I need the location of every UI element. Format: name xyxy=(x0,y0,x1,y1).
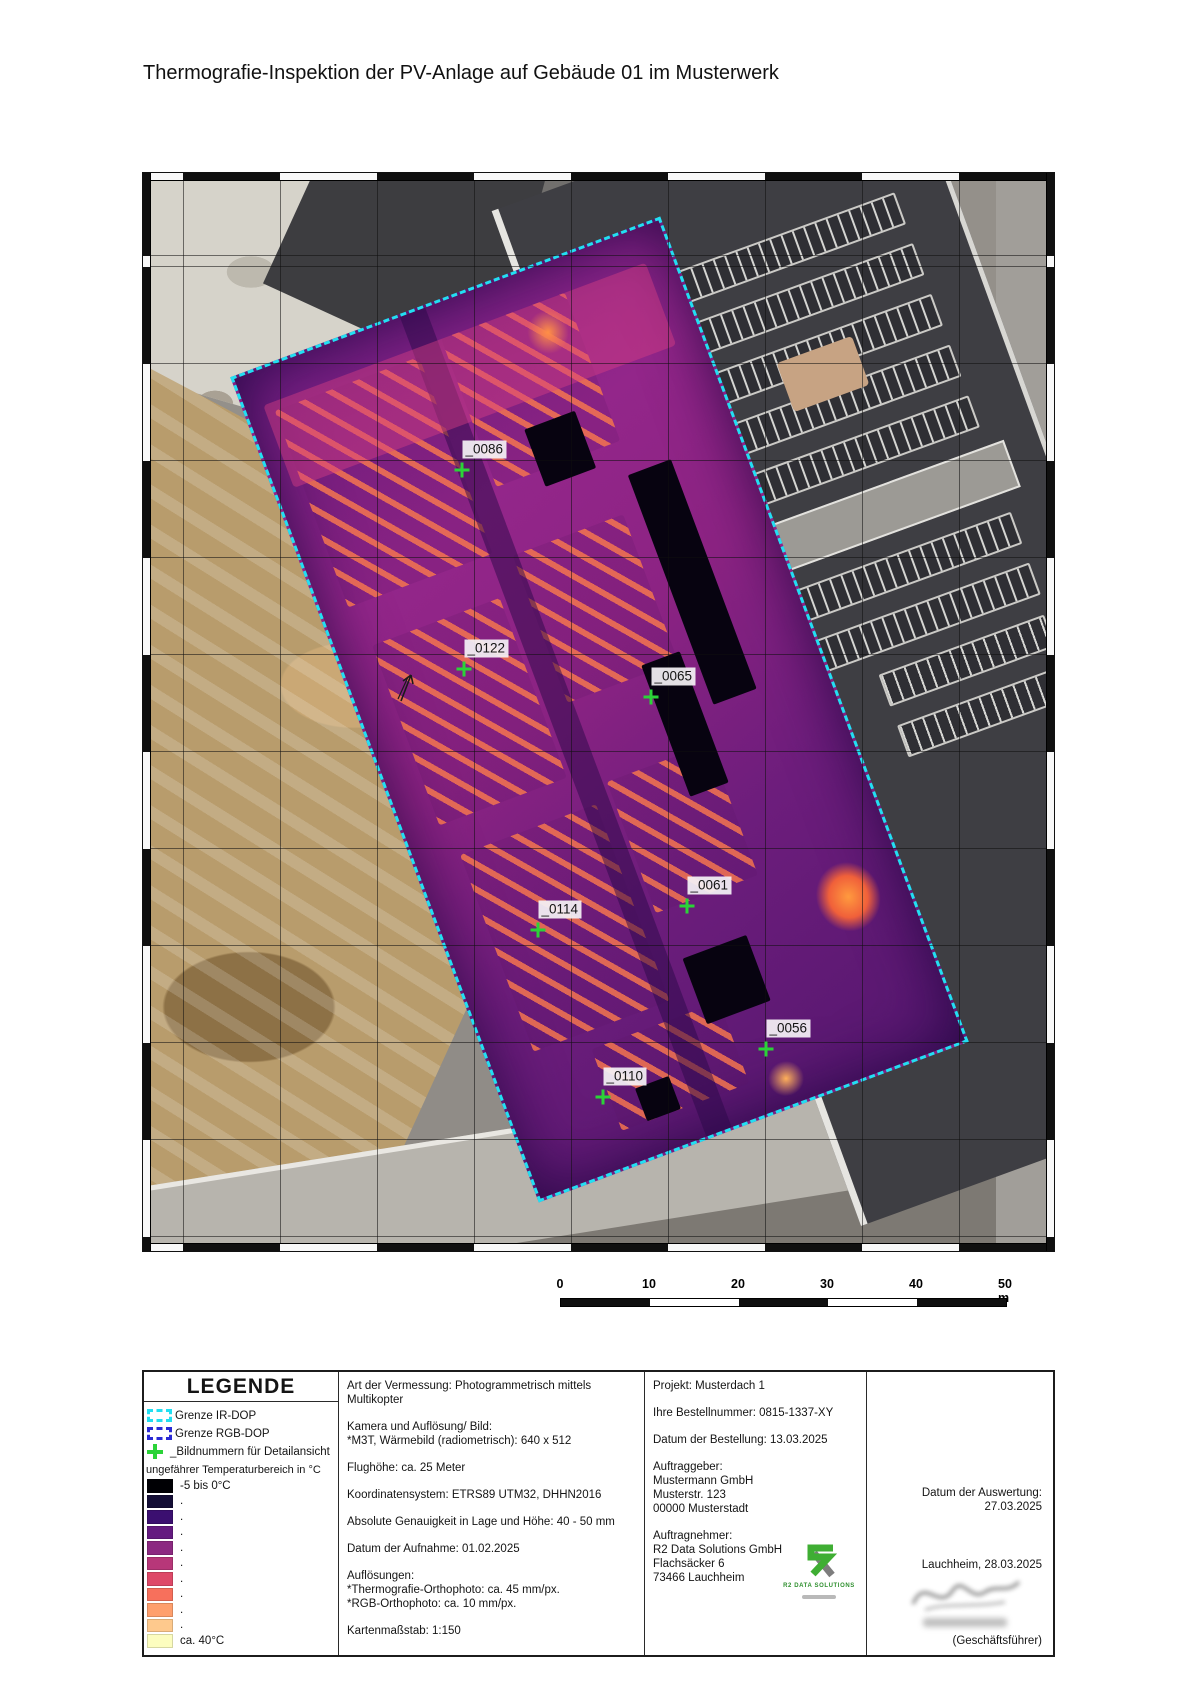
detail-image-marker: _0086 xyxy=(455,463,470,478)
scalebar-segment xyxy=(917,1299,1006,1306)
temperature-swatch-label: . xyxy=(180,1510,183,1524)
scalebar-segment xyxy=(828,1299,917,1306)
detail-image-marker: _0122 xyxy=(457,662,472,677)
temperature-swatch-label: . xyxy=(180,1618,183,1632)
temperature-swatch-row: . xyxy=(147,1602,338,1618)
legend-item-label: Grenze RGB-DOP xyxy=(175,1427,270,1441)
project-info-block: Ihre Bestellnummer: 0815-1337-XY xyxy=(653,1406,860,1420)
project-info-block: Auftraggeber:Mustermann GmbHMusterstr. 1… xyxy=(653,1460,860,1516)
temperature-swatch-label: . xyxy=(180,1587,183,1601)
survey-info-paragraph: Flughöhe: ca. 25 Meter xyxy=(347,1461,638,1475)
detail-image-number: _0065 xyxy=(652,668,696,686)
green-cross-icon xyxy=(455,463,470,478)
survey-info-paragraph: Art der Vermessung: Photogrammetrisch mi… xyxy=(347,1379,638,1407)
dashed-boundary-icon xyxy=(147,1409,172,1422)
legend-marker-item: _Bildnummern für Detailansicht xyxy=(147,1443,338,1460)
signature xyxy=(905,1568,1025,1618)
map-scalebar: 0 10 20 30 40 50 m xyxy=(560,1277,1040,1311)
temperature-swatch-row: . xyxy=(147,1540,338,1556)
survey-info-column: Art der Vermessung: Photogrammetrisch mi… xyxy=(338,1372,644,1655)
temperature-swatch-row: ca. 40°C xyxy=(147,1633,338,1649)
temperature-swatch-label: . xyxy=(180,1494,183,1508)
temperature-swatch-row: . xyxy=(147,1509,338,1525)
scalebar-bar xyxy=(560,1298,1007,1307)
survey-info-paragraph: Auflösungen:*Thermografie-Orthophoto: ca… xyxy=(347,1569,638,1611)
green-cross-icon xyxy=(147,1444,164,1459)
project-info-column: Projekt: Musterdach 1 Ihre Bestellnummer… xyxy=(644,1372,866,1655)
temperature-color-swatch xyxy=(147,1634,173,1648)
dashed-boundary-icon xyxy=(147,1427,172,1440)
temperature-color-swatch xyxy=(147,1603,173,1617)
map-frame-top xyxy=(143,173,1054,181)
north-arrow-icon xyxy=(395,671,425,705)
temperature-color-swatch xyxy=(147,1557,173,1571)
green-cross-icon xyxy=(531,923,546,938)
scalebar-tick-label: 0 xyxy=(557,1277,564,1291)
project-info-block: Datum der Bestellung: 13.03.2025 xyxy=(653,1433,860,1447)
temperature-color-swatch xyxy=(147,1526,173,1540)
temperature-color-swatch xyxy=(147,1495,173,1509)
logo-web-line xyxy=(802,1595,836,1599)
detail-image-number: _0122 xyxy=(465,640,509,658)
detail-image-number: _0114 xyxy=(539,901,582,919)
temperature-swatch-row: -5 bis 0°C xyxy=(147,1478,338,1494)
scalebar-tick-label: 40 xyxy=(909,1277,923,1291)
project-info-block: Projekt: Musterdach 1 xyxy=(653,1379,860,1393)
green-cross-icon xyxy=(680,899,695,914)
detail-image-marker: _0110 xyxy=(596,1090,611,1105)
logo-brand-text: R2 DATA SOLUTIONS xyxy=(780,1579,858,1593)
survey-info-paragraph: Kamera und Auflösung/ Bild:*M3T, Wärmebi… xyxy=(347,1420,638,1448)
survey-info-paragraph: Datum der Aufnahme: 01.02.2025 xyxy=(347,1542,638,1556)
legend-item-label: _Bildnummern für Detailansicht xyxy=(170,1445,330,1459)
scalebar-segment xyxy=(650,1299,739,1306)
scalebar-tick-label: 20 xyxy=(731,1277,745,1291)
signature-name-blur xyxy=(923,1618,1007,1627)
temperature-color-swatch xyxy=(147,1479,173,1493)
temperature-swatch-label: . xyxy=(180,1603,183,1617)
survey-info-paragraph: Koordinatensystem: ETRS89 UTM32, DHHN201… xyxy=(347,1488,638,1502)
scalebar-tick-label: 10 xyxy=(642,1277,656,1291)
evaluation-date-value: 27.03.2025 xyxy=(984,1501,1042,1513)
temperature-scale-title: ungefährer Temperaturbereich in °C xyxy=(146,1463,338,1477)
temperature-swatch-row: . xyxy=(147,1587,338,1603)
temperature-color-swatch xyxy=(147,1588,173,1602)
page-title: Thermografie-Inspektion der PV-Anlage au… xyxy=(143,62,779,85)
temperature-swatch-row: . xyxy=(147,1494,338,1510)
detail-image-marker: _0114 xyxy=(531,923,546,938)
survey-info-paragraph: Absolute Genauigkeit in Lage und Höhe: 4… xyxy=(347,1515,638,1529)
temperature-swatch-row: . xyxy=(147,1571,338,1587)
detail-image-number: _0061 xyxy=(688,877,732,895)
temperature-swatch-label: . xyxy=(180,1572,183,1586)
report-page: { "title": "Thermografie-Inspektion der … xyxy=(0,0,1200,1697)
temperature-swatch-row: . xyxy=(147,1525,338,1541)
green-cross-icon xyxy=(644,690,659,705)
scalebar-segment xyxy=(561,1299,650,1306)
detail-image-marker: _0065 xyxy=(644,690,659,705)
temperature-color-swatch xyxy=(147,1541,173,1555)
temperature-swatch-label: . xyxy=(180,1556,183,1570)
orthophoto-map: _0086 _0122 _0065 _0061 _0114 _0056 _011… xyxy=(142,172,1055,1252)
detail-image-marker: _0061 xyxy=(680,899,695,914)
detail-image-number: _0056 xyxy=(767,1020,811,1038)
temperature-color-swatch xyxy=(147,1619,173,1633)
temperature-color-swatch xyxy=(147,1510,173,1524)
temperature-swatch-label: . xyxy=(180,1541,183,1555)
temperature-swatch-row: . xyxy=(147,1618,338,1634)
signature-caption: (Geschäftsführer) xyxy=(953,1634,1042,1648)
legend-column: LEGENDE Grenze IR-DOP Grenze RGB-DOP _Bi… xyxy=(144,1372,338,1655)
evaluation-date: Datum der Auswertung: 27.03.2025 xyxy=(922,1486,1042,1514)
legend-header: LEGENDE xyxy=(144,1372,338,1402)
temperature-swatch-label: -5 bis 0°C xyxy=(180,1479,231,1493)
legend-item-label: Grenze IR-DOP xyxy=(175,1409,256,1423)
temperature-color-swatch xyxy=(147,1572,173,1586)
evaluation-column: Datum der Auswertung: 27.03.2025 Lauchhe… xyxy=(866,1372,1051,1655)
legend-boundary-item: Grenze IR-DOP xyxy=(147,1407,338,1424)
map-frame-right xyxy=(1046,173,1054,1251)
r2-logo-icon xyxy=(801,1544,837,1578)
green-cross-icon xyxy=(596,1090,611,1105)
survey-info-paragraph: Kartenmaßstab: 1:150 xyxy=(347,1624,638,1638)
detail-image-number: _0086 xyxy=(463,441,507,459)
detail-image-marker: _0056 xyxy=(759,1042,774,1057)
scalebar-segment xyxy=(739,1299,828,1306)
temperature-swatch-label: ca. 40°C xyxy=(180,1634,224,1648)
legend-boundary-item: Grenze RGB-DOP xyxy=(147,1425,338,1442)
evaluation-date-label: Datum der Auswertung: xyxy=(922,1487,1042,1499)
detail-image-number: _0110 xyxy=(604,1068,647,1086)
map-info-table: LEGENDE Grenze IR-DOP Grenze RGB-DOP _Bi… xyxy=(142,1370,1055,1657)
green-cross-icon xyxy=(457,662,472,677)
scalebar-tick-label: 30 xyxy=(820,1277,834,1291)
contractor-logo: R2 DATA SOLUTIONS xyxy=(780,1544,858,1599)
map-frame-bottom xyxy=(143,1243,1054,1251)
temperature-swatch-row: . xyxy=(147,1556,338,1572)
temperature-swatch-label: . xyxy=(180,1525,183,1539)
green-cross-icon xyxy=(759,1042,774,1057)
map-frame-left xyxy=(143,173,151,1251)
